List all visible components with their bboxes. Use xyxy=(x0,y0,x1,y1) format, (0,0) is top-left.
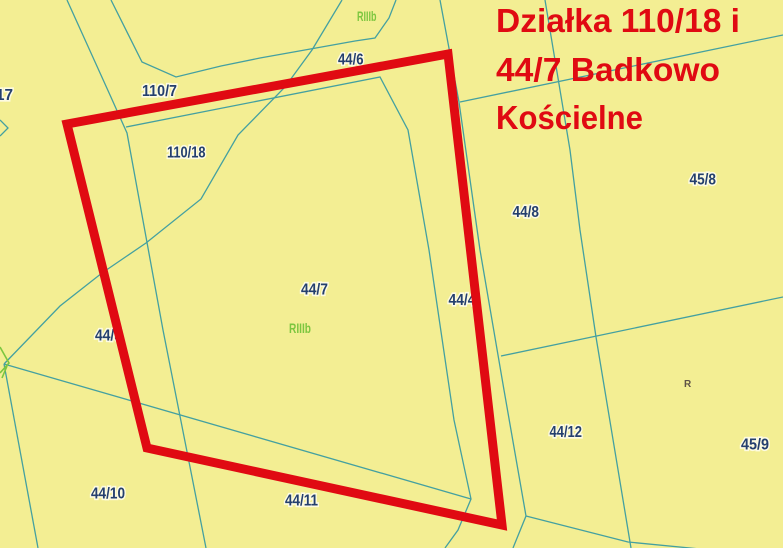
svg-text:44/11: 44/11 xyxy=(285,493,318,510)
svg-text:44/10: 44/10 xyxy=(91,486,125,503)
svg-text:44/12: 44/12 xyxy=(550,424,583,441)
svg-text:44/7: 44/7 xyxy=(301,282,328,299)
svg-text:R: R xyxy=(684,379,692,390)
svg-text:Działka 110/18 i: Działka 110/18 i xyxy=(496,2,740,39)
svg-text:17: 17 xyxy=(0,87,13,104)
svg-text:45/8: 45/8 xyxy=(690,172,717,189)
svg-text:44/7 Badkowo: 44/7 Badkowo xyxy=(496,51,720,88)
svg-text:Kościelne: Kościelne xyxy=(496,99,643,136)
svg-text:45/9: 45/9 xyxy=(741,437,769,454)
svg-text:110/7: 110/7 xyxy=(142,83,177,100)
svg-text:44/8: 44/8 xyxy=(513,204,540,221)
svg-text:110/18: 110/18 xyxy=(167,145,206,162)
svg-text:RIIIb: RIIIb xyxy=(357,8,377,24)
svg-text:RIIIb: RIIIb xyxy=(289,320,311,336)
